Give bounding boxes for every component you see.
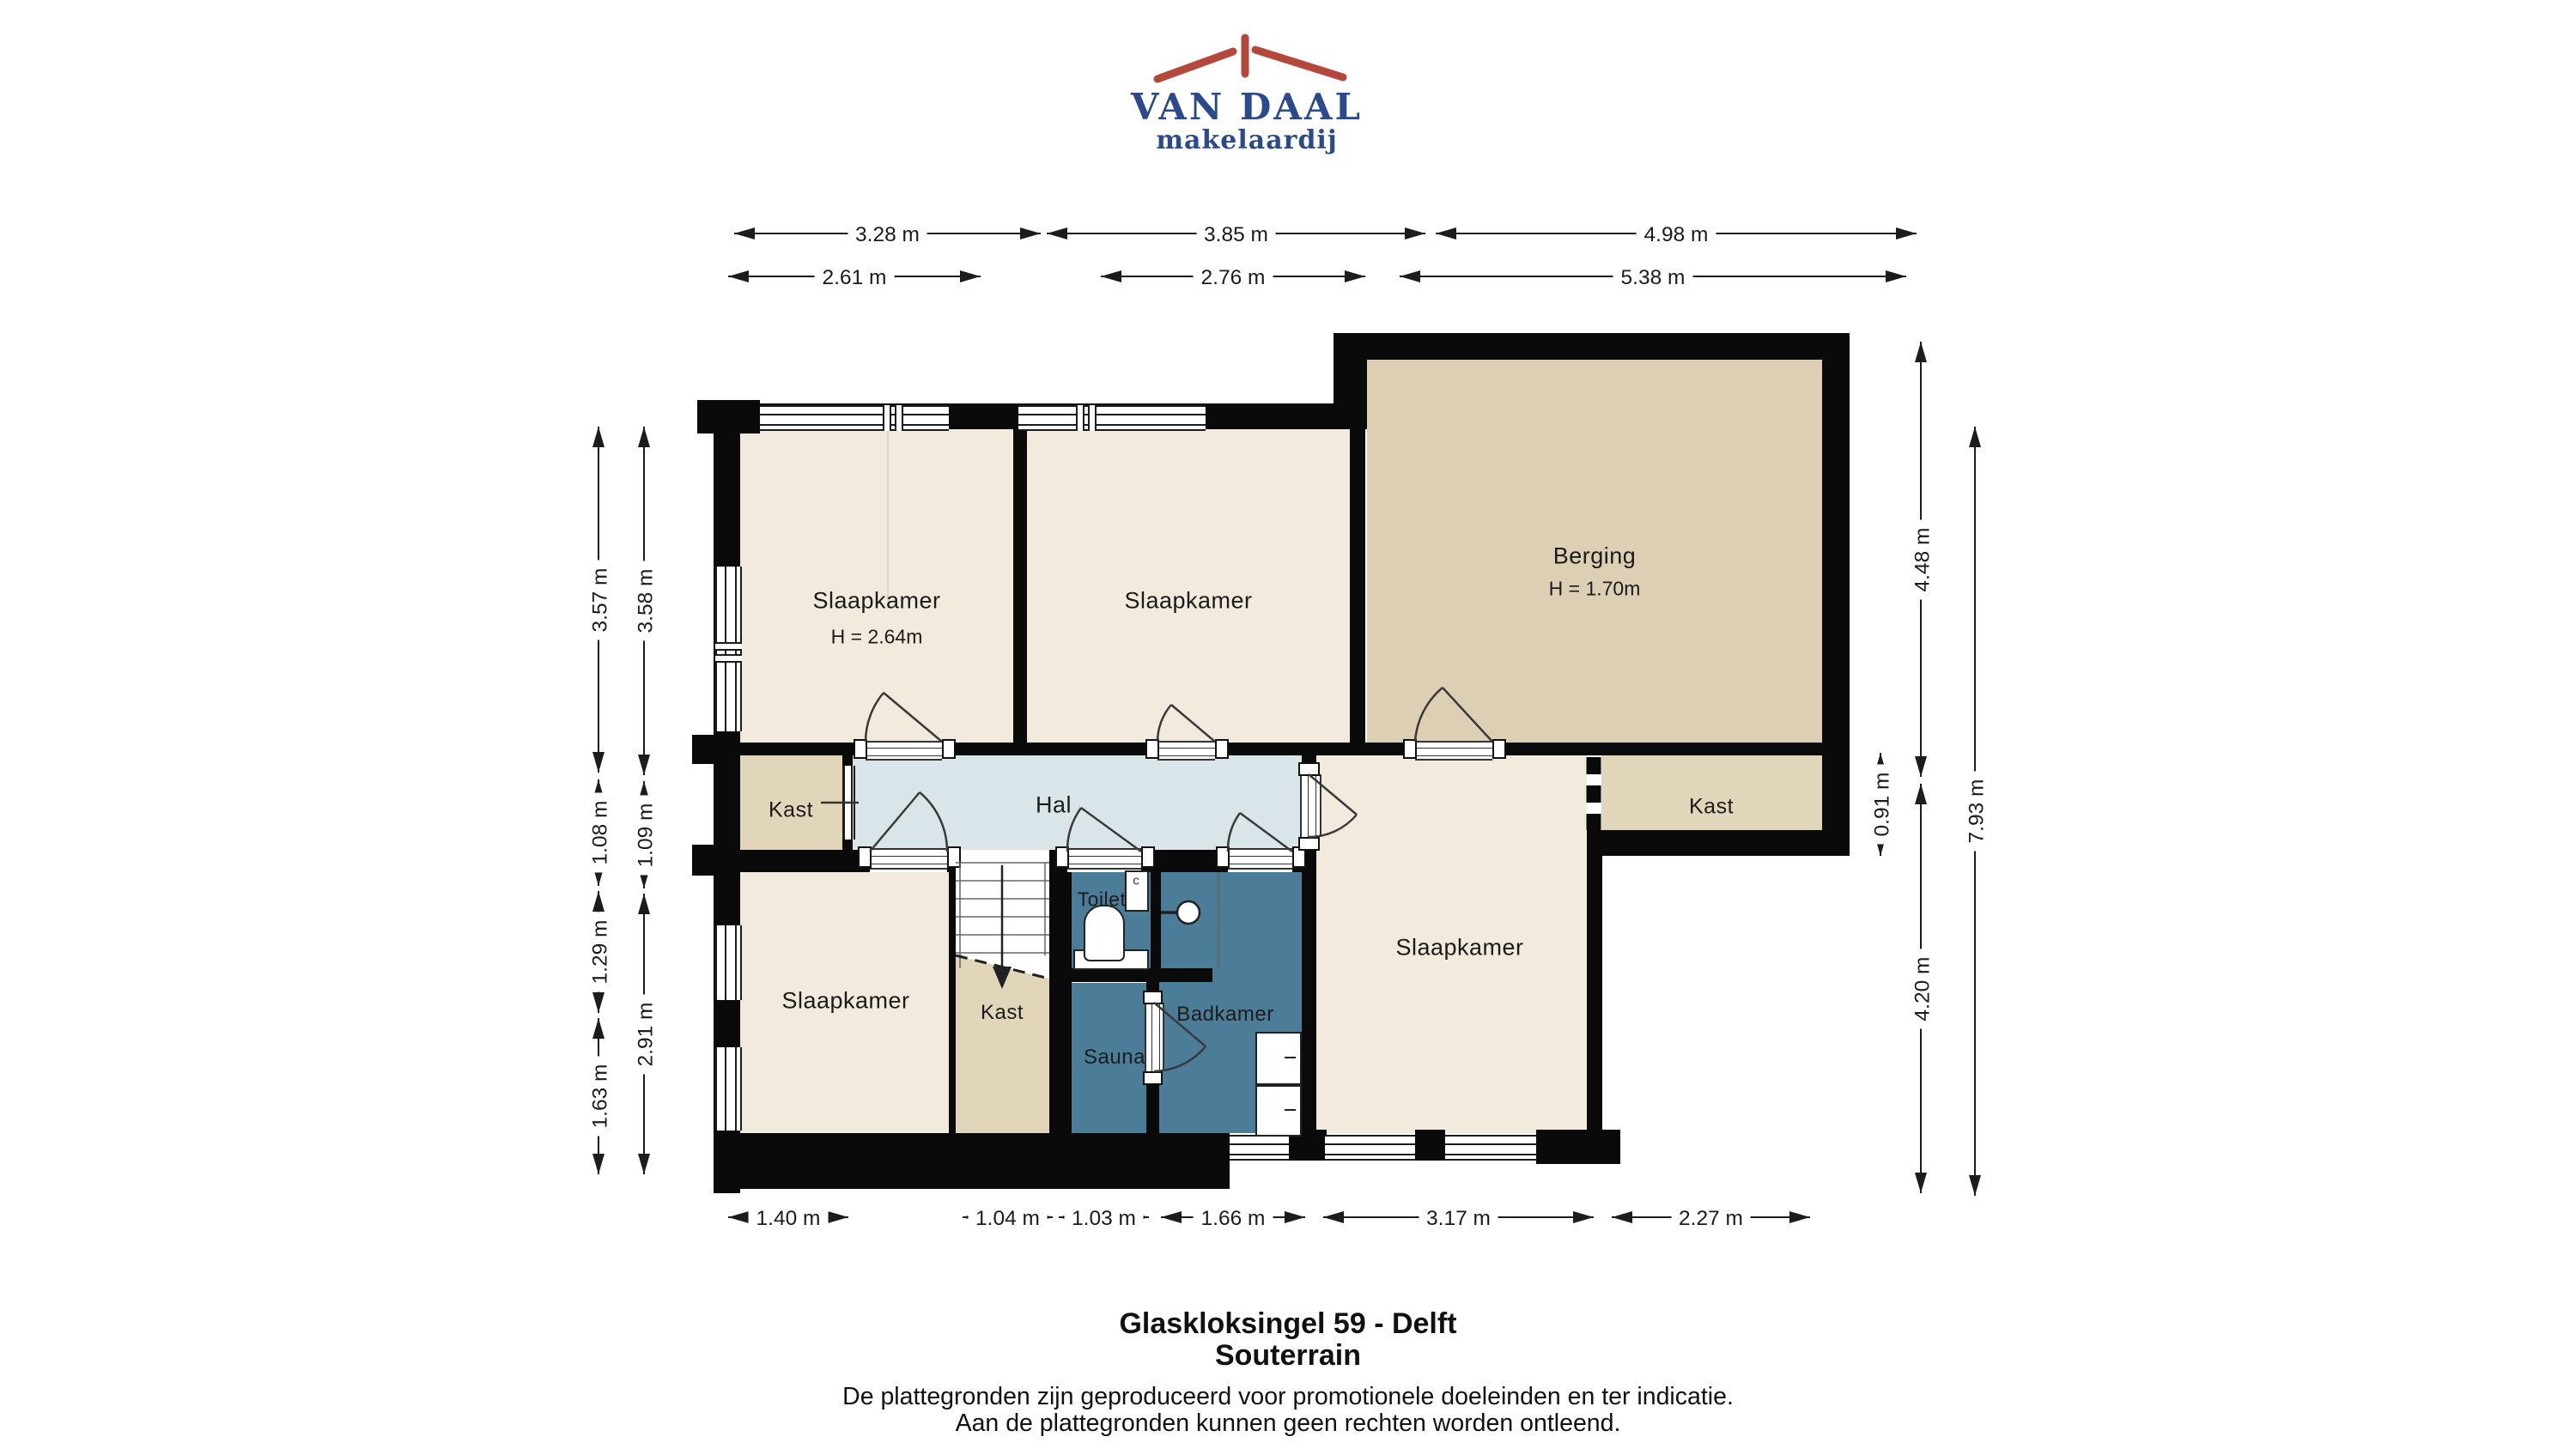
shower-area xyxy=(1161,872,1302,968)
room-label-slaapkamer-sw: Slaapkamer xyxy=(781,988,909,1015)
dimension: 0.91 m xyxy=(1880,753,1881,856)
room-label-slaapkamer-nw: Slaapkamer xyxy=(812,588,940,615)
dimension: 1.63 m xyxy=(598,1018,599,1174)
dimension: 1.03 m xyxy=(1059,1216,1149,1218)
window xyxy=(1445,1135,1536,1161)
door-threshold xyxy=(866,741,942,761)
wall xyxy=(1302,837,1316,1133)
room-note-slaapkamer-nw: H = 2.64m xyxy=(831,626,923,649)
window xyxy=(715,925,742,1000)
room-label-berging: Berging xyxy=(1553,543,1637,570)
closet-panel xyxy=(842,766,853,840)
dimension: 1.29 m xyxy=(598,891,599,1013)
wall xyxy=(1822,333,1850,856)
room-label-hal: Hal xyxy=(1036,792,1072,819)
door-jamb xyxy=(1298,762,1320,776)
dimension: 2.27 m xyxy=(1612,1216,1810,1218)
door-jamb xyxy=(947,846,961,868)
door-jamb xyxy=(1055,846,1069,868)
wall xyxy=(1151,872,1161,968)
dimension: 2.91 m xyxy=(643,894,645,1174)
logo-tagline: makelaardij xyxy=(1127,126,1367,155)
room-label-slaapkamer-n: Slaapkamer xyxy=(1124,588,1252,615)
wall xyxy=(692,845,740,876)
dimension: 1.04 m xyxy=(963,1216,1053,1218)
sink-label: c xyxy=(1133,874,1139,888)
door-jamb xyxy=(1145,739,1159,759)
wall xyxy=(1013,429,1027,743)
floorplan-page: VAN DAAL makelaardij xyxy=(0,0,2576,1449)
dimension: 1.66 m xyxy=(1161,1216,1305,1218)
door-threshold xyxy=(1157,741,1215,761)
door-threshold xyxy=(1228,848,1292,870)
wall xyxy=(1587,830,1850,856)
wall xyxy=(842,755,853,766)
curtain-line xyxy=(887,429,889,601)
door-threshold xyxy=(1300,774,1321,837)
door-jamb xyxy=(1143,1071,1163,1085)
room-kast-stairs xyxy=(956,955,1049,1133)
dimension: 3.58 m xyxy=(643,427,645,775)
wall xyxy=(942,743,1157,755)
toilet-icon xyxy=(1084,905,1125,961)
door-jamb xyxy=(942,739,956,759)
wall xyxy=(1049,872,1072,1133)
room-label-kast-east: Kast xyxy=(1689,795,1734,820)
room-label-kast-stairs: Kast xyxy=(981,1001,1024,1025)
footer: Glaskloksingel 59 - Delft Souterrain De … xyxy=(0,1308,2576,1437)
dimension: 1.40 m xyxy=(728,1216,848,1218)
room-label-kast-west: Kast xyxy=(769,798,813,823)
wall xyxy=(1536,1130,1620,1164)
room-note-berging: H = 1.70m xyxy=(1549,578,1641,601)
window xyxy=(715,1047,742,1131)
washer-icon xyxy=(1255,1032,1302,1085)
door-jamb xyxy=(1143,991,1163,1004)
room-hal xyxy=(853,755,1302,850)
wall xyxy=(1415,1130,1445,1161)
door-jamb xyxy=(854,739,867,759)
dimension: 1.08 m xyxy=(598,779,599,886)
door-jamb xyxy=(1215,739,1229,759)
window xyxy=(1230,1135,1289,1161)
door-jamb xyxy=(1492,739,1506,759)
dryer-handle xyxy=(1285,1109,1296,1111)
dimension: 3.17 m xyxy=(1323,1216,1594,1218)
door-threshold xyxy=(1067,848,1141,870)
door-threshold xyxy=(1145,1003,1164,1071)
door-threshold xyxy=(870,848,947,870)
wall xyxy=(714,743,866,755)
washer-handle xyxy=(1285,1057,1296,1058)
roof-icon xyxy=(1127,31,1367,84)
window xyxy=(1018,405,1206,431)
disclaimer-line2: Aan de plattegronden kunnen geen rechten… xyxy=(0,1410,2576,1437)
window xyxy=(715,567,742,731)
dimension: 4.98 m xyxy=(1436,233,1917,234)
disclaimer-line1: De plattegronden zijn geproduceerd voor … xyxy=(0,1384,2576,1410)
dimension: 1.09 m xyxy=(643,781,645,888)
door-jamb xyxy=(1216,846,1230,868)
wall xyxy=(714,1133,1230,1189)
room-label-toilet: Toilet xyxy=(1078,888,1127,912)
room-slaapkamer-n xyxy=(1027,429,1350,743)
dryer-icon xyxy=(1255,1085,1302,1137)
window xyxy=(1325,1135,1415,1161)
address-title: Glaskloksingel 59 - Delft xyxy=(0,1308,2576,1340)
wall xyxy=(842,840,853,850)
dimension: 4.20 m xyxy=(1920,784,1922,1193)
wall xyxy=(740,850,870,872)
dimension: 4.48 m xyxy=(1920,342,1922,777)
wall xyxy=(1492,743,1822,755)
dimension: 2.76 m xyxy=(1101,276,1365,277)
wall xyxy=(1587,830,1602,1161)
floor-title: Souterrain xyxy=(0,1340,2576,1372)
door-jamb xyxy=(1403,739,1417,759)
dimension: 3.28 m xyxy=(734,233,1041,234)
dimension: 3.85 m xyxy=(1047,233,1425,234)
stairs-area xyxy=(956,850,1049,970)
door-jamb xyxy=(858,846,872,868)
wall xyxy=(1350,403,1365,743)
dimension: 7.93 m xyxy=(1974,427,1976,1196)
window xyxy=(760,405,949,431)
room-slaapkamer-nw xyxy=(740,429,1013,743)
logo-name: VAN DAAL xyxy=(1127,88,1367,126)
room-label-sauna: Sauna xyxy=(1084,1046,1145,1070)
door-jamb xyxy=(1141,846,1155,868)
room-label-slaapkamer-e: Slaapkamer xyxy=(1395,935,1523,961)
wall xyxy=(1072,968,1212,982)
dimension: 5.38 m xyxy=(1400,276,1906,277)
room-label-badkamer: Badkamer xyxy=(1176,1003,1273,1027)
door-threshold xyxy=(1415,741,1492,761)
agency-logo: VAN DAAL makelaardij xyxy=(1127,31,1367,155)
wall xyxy=(1334,333,1850,360)
door-jamb xyxy=(1298,837,1320,851)
wall xyxy=(949,872,956,1133)
dimension: 3.57 m xyxy=(598,427,599,773)
dimension: 2.61 m xyxy=(728,276,981,277)
